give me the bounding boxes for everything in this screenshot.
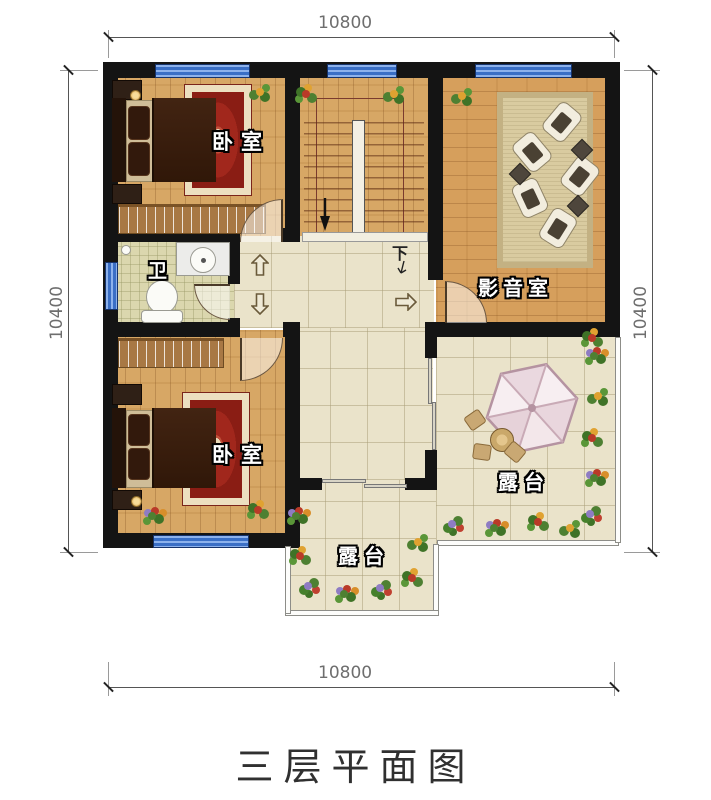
- flower-cluster: [594, 392, 602, 400]
- stair-landing: [302, 232, 428, 242]
- sink-drain: [201, 258, 206, 263]
- wall: [605, 62, 620, 337]
- stairs-down-arrow-icon: [396, 260, 410, 276]
- dim-extension-line: [614, 662, 615, 696]
- dim-extension-line: [614, 30, 615, 58]
- pillow: [128, 106, 150, 140]
- dim-extension-line: [60, 552, 98, 553]
- flower-cluster: [408, 574, 416, 582]
- lamp: [131, 496, 142, 507]
- dim-extension-line: [108, 662, 109, 696]
- dimension-line-right: [652, 70, 653, 553]
- terrace-railing: [285, 610, 439, 616]
- plant: [458, 92, 466, 100]
- page-title: 三层平面图: [0, 736, 711, 791]
- flower-cluster: [292, 512, 300, 520]
- sliding-door: [364, 484, 407, 488]
- pillow: [128, 448, 150, 480]
- flower-cluster: [304, 582, 312, 590]
- floor-drain: [121, 245, 131, 255]
- room-label-terrace-bottom: 露台: [338, 540, 390, 569]
- chair-cushion: [547, 218, 568, 241]
- flower-cluster: [534, 518, 542, 526]
- stair-handrail: [352, 120, 365, 234]
- down-arrow-icon: [251, 293, 269, 315]
- wall: [425, 337, 437, 358]
- terrace-railing: [615, 337, 621, 543]
- bed-headboard: [112, 408, 126, 488]
- stool: [472, 443, 492, 461]
- flower-cluster: [586, 510, 594, 518]
- chair-cushion: [550, 111, 572, 134]
- sliding-door: [432, 402, 436, 450]
- window: [105, 262, 118, 310]
- window: [475, 64, 572, 78]
- chair-cushion: [568, 165, 590, 188]
- window: [153, 535, 249, 548]
- toilet-bowl: [146, 280, 178, 314]
- flower-cluster: [448, 520, 456, 528]
- bed-headboard: [112, 98, 126, 182]
- bed-duvet: [152, 98, 216, 182]
- flower-cluster: [296, 552, 304, 560]
- dimension-line-bottom: [108, 687, 615, 688]
- dimension-left-value: 10400: [47, 286, 67, 340]
- plant: [148, 512, 156, 520]
- flower-cluster: [376, 584, 384, 592]
- room-label-bedroom-top: 卧室: [212, 126, 270, 156]
- up-arrow-icon: [251, 254, 269, 276]
- terrace-railing: [285, 546, 291, 614]
- floor-plan: 10800 10800 10400 10400: [0, 0, 711, 800]
- wall: [428, 62, 443, 280]
- dimension-right-value: 10400: [631, 286, 651, 340]
- flower-cluster: [590, 474, 598, 482]
- room-label-media-room: 影音室: [478, 272, 553, 301]
- wall: [103, 322, 240, 337]
- plant: [390, 90, 398, 98]
- window: [155, 64, 250, 78]
- window: [327, 64, 397, 78]
- hallway-floor-lower: [293, 328, 433, 480]
- flower-cluster: [588, 434, 596, 442]
- dimension-bottom-value: 10800: [318, 663, 372, 683]
- plant: [254, 506, 262, 514]
- pillow: [128, 414, 150, 446]
- flower-cluster: [414, 538, 422, 546]
- flower-cluster: [566, 524, 574, 532]
- sliding-door: [322, 479, 366, 483]
- dim-extension-line: [108, 30, 109, 58]
- bed-duvet: [152, 408, 216, 488]
- wall: [283, 228, 300, 242]
- terrace-railing: [437, 540, 619, 546]
- nightstand: [112, 184, 142, 204]
- flower-cluster: [490, 524, 498, 532]
- flower-cluster: [340, 590, 348, 598]
- room-label-terrace-right: 露台: [498, 466, 550, 495]
- plant: [588, 334, 596, 342]
- wall: [285, 62, 300, 242]
- wall: [425, 450, 437, 490]
- chair-cushion: [521, 141, 543, 164]
- room-label-bathroom: 卫: [148, 256, 167, 283]
- dimension-line-top: [108, 37, 615, 38]
- wardrobe: [118, 338, 224, 368]
- stair-direction-arrow-icon: [319, 198, 331, 232]
- nightstand: [112, 384, 142, 405]
- wall: [288, 478, 322, 490]
- right-arrow-icon: [395, 293, 417, 311]
- flower-cluster: [590, 352, 598, 360]
- dim-extension-line: [60, 70, 98, 71]
- pillow: [128, 142, 150, 176]
- chair-cushion: [520, 188, 540, 210]
- room-label-bedroom-bottom: 卧室: [212, 439, 270, 469]
- plant: [302, 90, 310, 98]
- plant: [256, 88, 264, 96]
- toilet-tank: [141, 310, 183, 323]
- terrace-railing: [433, 544, 439, 614]
- dimension-top-value: 10800: [318, 13, 372, 33]
- dimension-line-left: [68, 70, 69, 553]
- sliding-door: [428, 358, 432, 404]
